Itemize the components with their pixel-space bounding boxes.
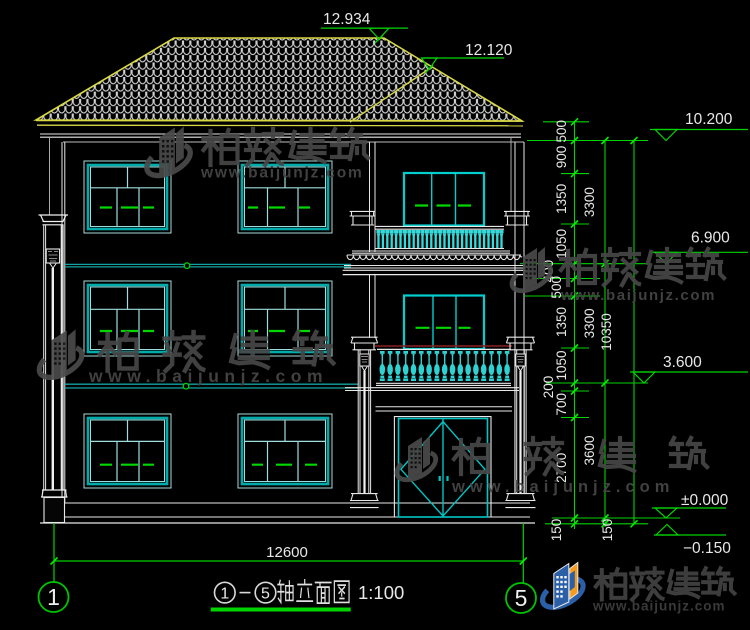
svg-text:12600: 12600: [266, 544, 308, 561]
svg-text:3600: 3600: [582, 435, 597, 465]
svg-text:10.200: 10.200: [685, 111, 733, 128]
svg-text:3300: 3300: [582, 308, 597, 338]
svg-text:12.934: 12.934: [323, 11, 371, 28]
svg-text:5: 5: [515, 585, 528, 611]
svg-text:1:100: 1:100: [358, 582, 404, 603]
svg-text:www.baijunjz.com: www.baijunjz.com: [451, 478, 674, 496]
svg-text:150: 150: [600, 519, 615, 542]
svg-text:5: 5: [261, 586, 270, 603]
svg-text:6.900: 6.900: [691, 230, 730, 247]
svg-text:−0.150: −0.150: [683, 540, 731, 557]
svg-text:3300: 3300: [582, 187, 597, 217]
svg-text:1: 1: [47, 584, 60, 610]
svg-text:www.baijunjz.com: www.baijunjz.com: [592, 599, 726, 614]
svg-text:10350: 10350: [599, 313, 614, 351]
svg-text:±0.000: ±0.000: [681, 492, 729, 509]
svg-text:1: 1: [220, 586, 229, 603]
svg-text:12.120: 12.120: [465, 42, 513, 59]
svg-text:www.baijunjz.com: www.baijunjz.com: [560, 287, 716, 304]
svg-text:3.600: 3.600: [663, 354, 702, 371]
svg-text:1050: 1050: [554, 350, 569, 380]
svg-text:500: 500: [554, 120, 569, 143]
svg-text:www.baijunjz.com: www.baijunjz.com: [88, 366, 328, 386]
svg-text:150: 150: [549, 519, 564, 542]
svg-text:900: 900: [554, 146, 569, 169]
svg-text:1350: 1350: [554, 184, 569, 214]
svg-text:1350: 1350: [554, 307, 569, 337]
svg-text:700: 700: [554, 393, 569, 416]
svg-text:www.baijunjz.com: www.baijunjz.com: [200, 165, 364, 182]
